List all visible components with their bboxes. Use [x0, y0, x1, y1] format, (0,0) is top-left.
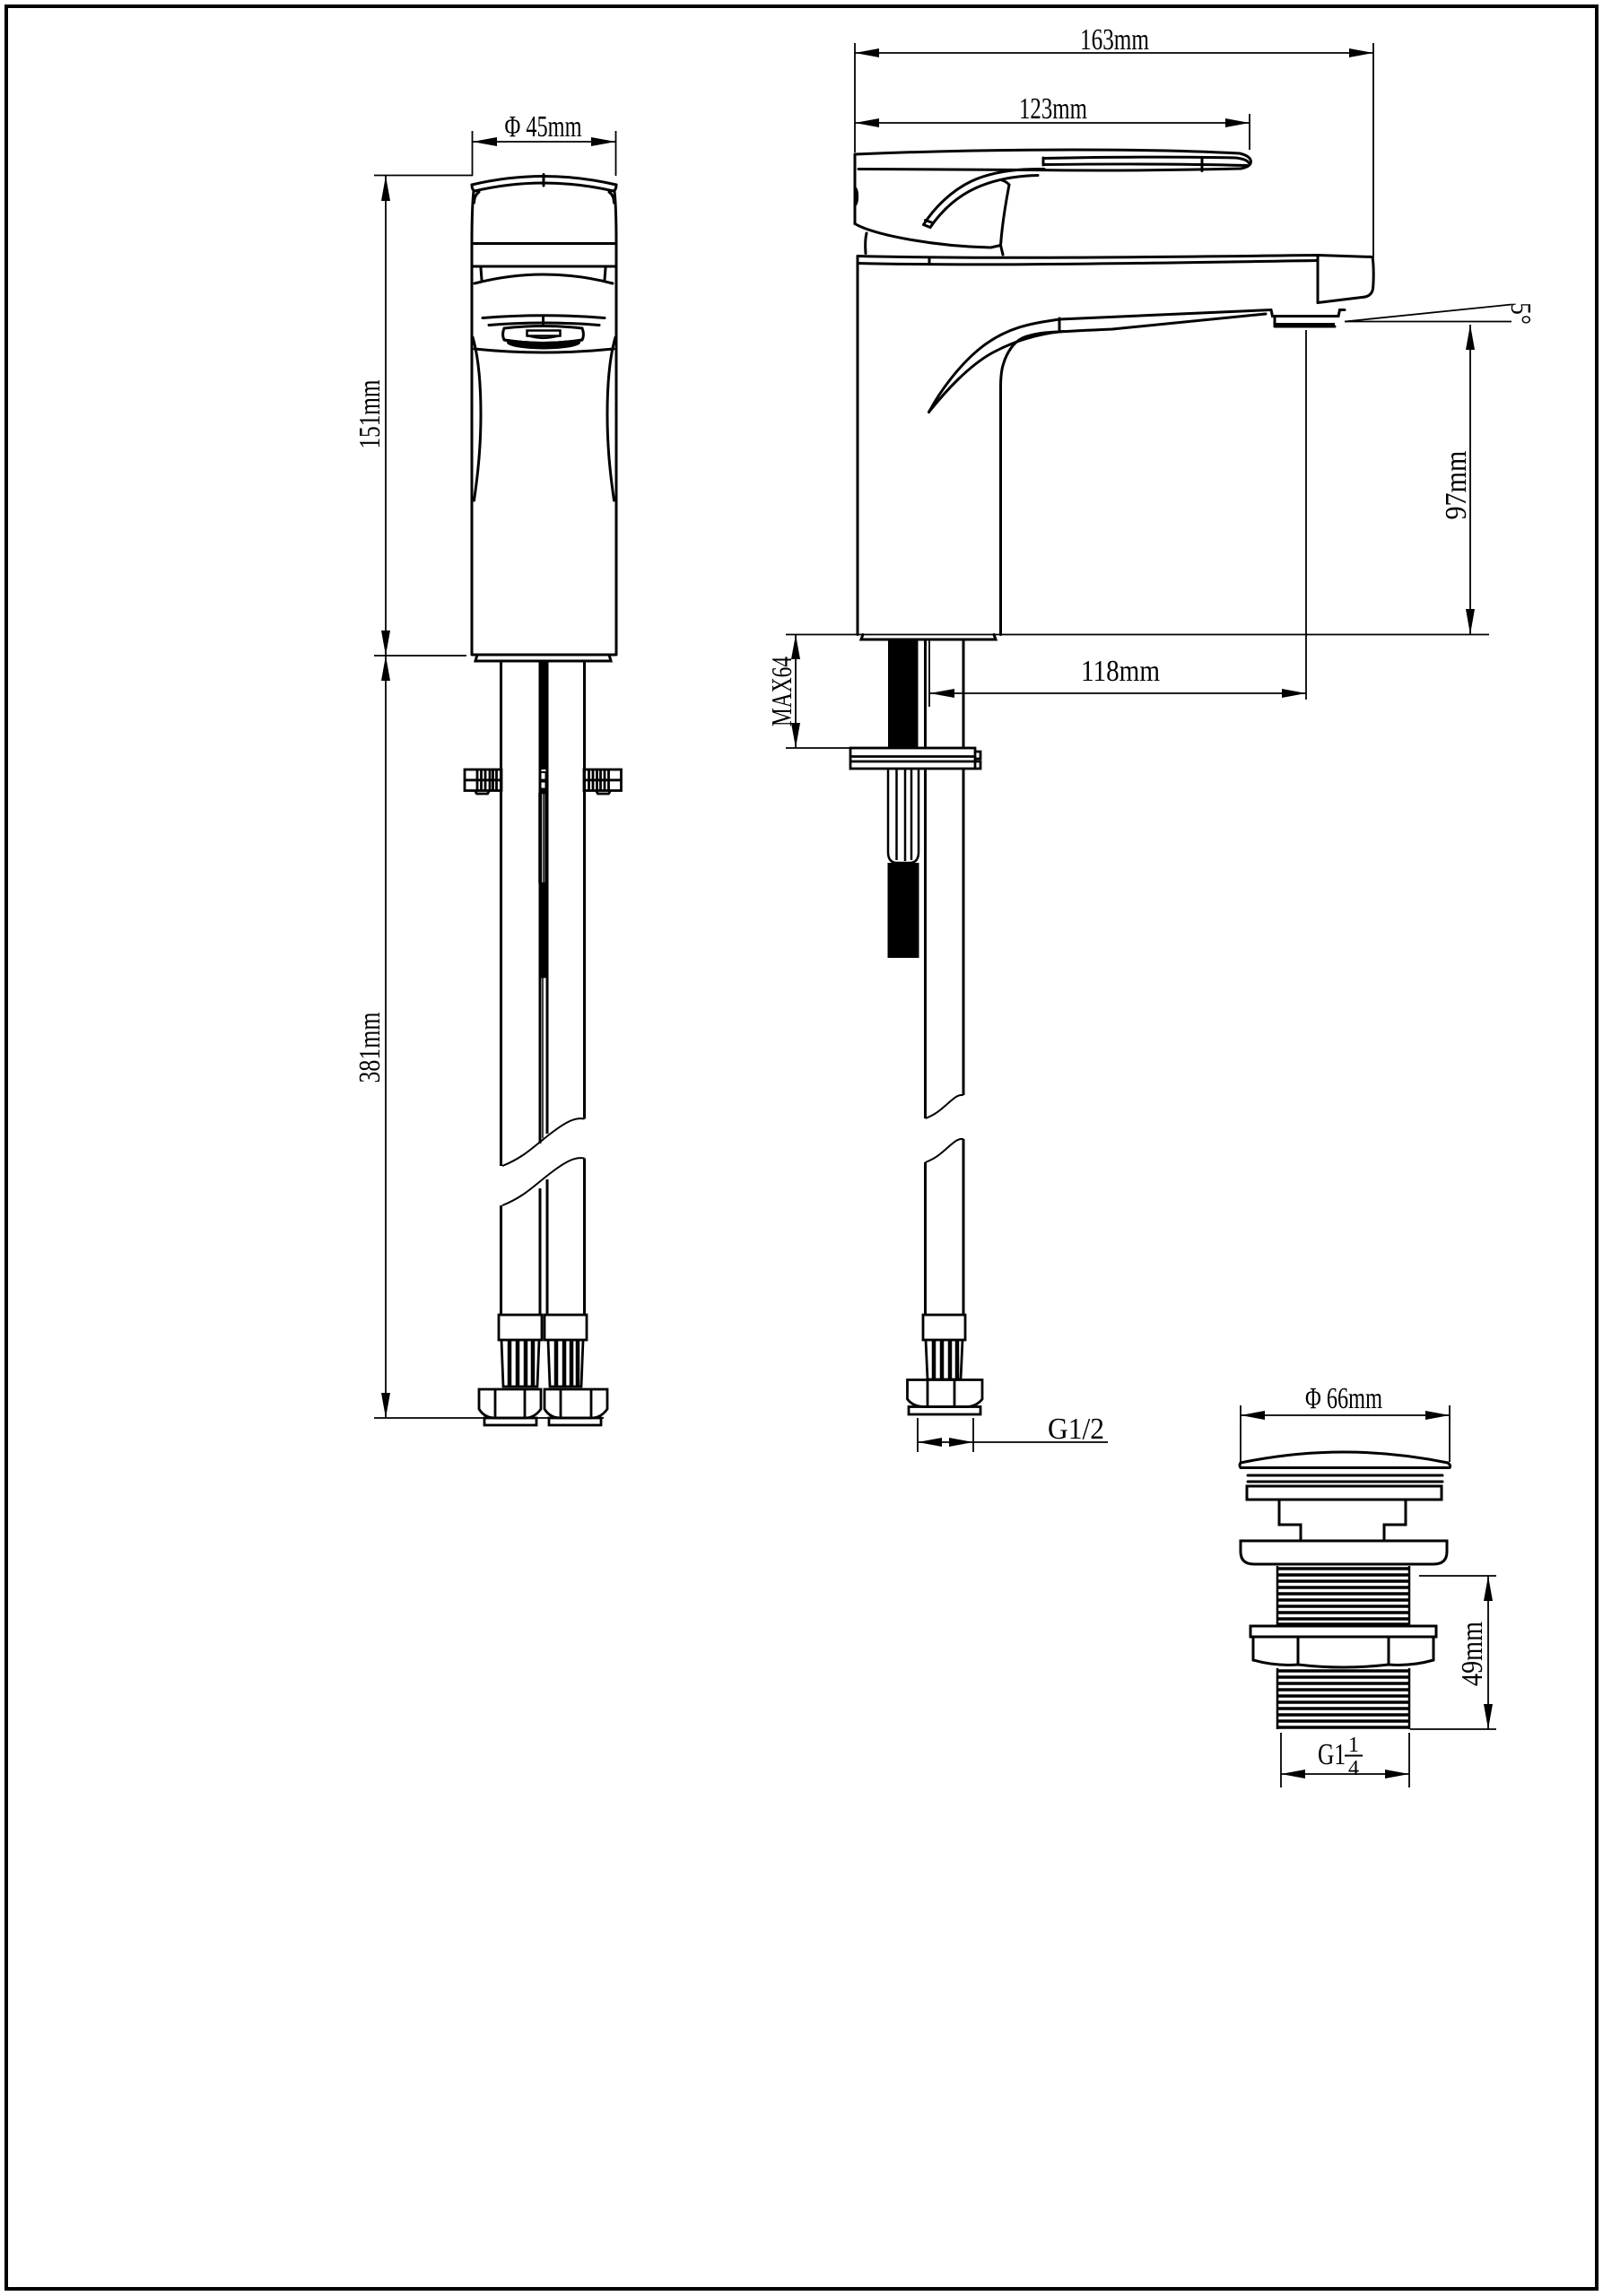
svg-text:49mm: 49mm — [1456, 1622, 1489, 1686]
svg-text:Φ 45mm: Φ 45mm — [505, 110, 582, 143]
svg-text:1: 1 — [1348, 1734, 1359, 1757]
svg-text:G1: G1 — [1318, 1738, 1346, 1771]
svg-text:118mm: 118mm — [1081, 655, 1160, 688]
svg-text:G1/2: G1/2 — [1048, 1413, 1104, 1446]
svg-text:381mm: 381mm — [353, 1013, 387, 1083]
svg-text:4: 4 — [1348, 1757, 1359, 1780]
svg-text:151mm: 151mm — [353, 380, 387, 449]
svg-text:97mm: 97mm — [1440, 451, 1473, 520]
svg-text:123mm: 123mm — [1019, 92, 1087, 126]
svg-text:163mm: 163mm — [1080, 23, 1149, 57]
svg-text:MAX64: MAX64 — [765, 657, 797, 726]
svg-text:5°: 5° — [1505, 302, 1538, 325]
svg-text:Φ 66mm: Φ 66mm — [1305, 1382, 1382, 1415]
